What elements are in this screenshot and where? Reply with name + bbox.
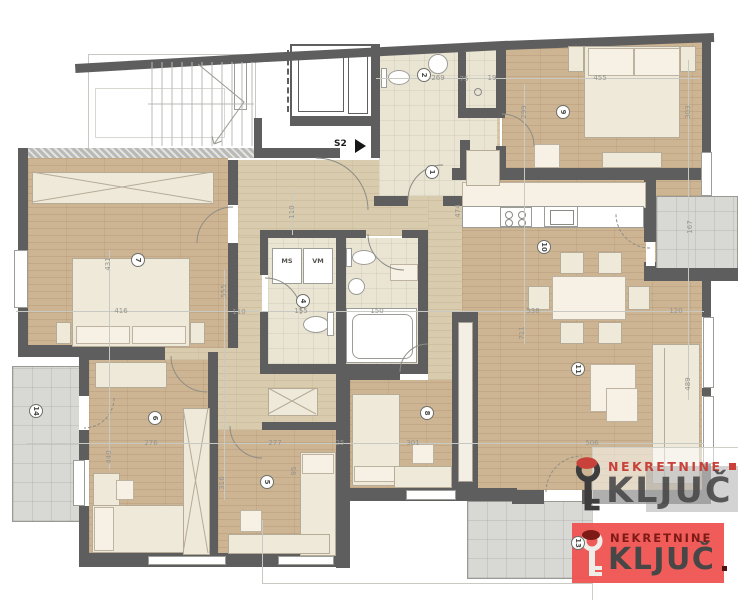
dim-label: 150: [370, 307, 383, 315]
stove: [500, 207, 532, 227]
dim-label: 316: [218, 476, 226, 489]
dim-label: 711: [518, 326, 526, 339]
wall-room6-left-b: [79, 430, 89, 460]
wardrobe-room7: [32, 172, 214, 204]
door-gap-terrace14: [79, 396, 89, 430]
dim-label: 167: [686, 220, 694, 233]
chair: [116, 480, 134, 500]
chair: [240, 510, 262, 532]
wall-room5-top: [262, 422, 336, 430]
sink-bath12: [348, 278, 365, 295]
dim-label: 95: [290, 467, 298, 476]
dryer-label: MS: [281, 257, 292, 283]
kitchen-sink: [544, 206, 578, 227]
bathtub: [346, 308, 417, 363]
washer-label: VM: [312, 257, 324, 283]
burner: [505, 211, 513, 219]
wall-bathC-right: [418, 230, 428, 372]
watermark-red-square: [729, 463, 736, 470]
dim-label: 416: [114, 307, 127, 315]
chair: [598, 252, 622, 274]
wall-bath-mid: [336, 230, 346, 372]
outline-line: [262, 520, 263, 584]
window-bottom-1: [148, 556, 226, 565]
toilet-bath12: [352, 250, 376, 265]
cabinet-room6: [95, 362, 167, 388]
wall-entry: [262, 148, 340, 158]
room-number-1: 1: [425, 165, 439, 179]
dryer-box: MS: [272, 248, 302, 284]
room-number-10: 10: [537, 240, 551, 254]
chair: [560, 252, 584, 274]
room-number-4: 4: [296, 294, 310, 308]
shelf-bath12: [390, 264, 418, 281]
dim-label: 474: [454, 204, 462, 217]
dim-label: 555: [220, 284, 228, 297]
desk-room5: [228, 534, 330, 554]
room-number-7: 7: [131, 253, 145, 267]
wall-room58-divider: [336, 378, 350, 568]
pillow: [302, 454, 334, 474]
wall-balcony-bottom: [644, 268, 738, 281]
pillow: [588, 48, 634, 76]
burner: [505, 219, 513, 227]
entrance-arrow-icon: [355, 139, 366, 153]
wall-bath2-bottom: [374, 196, 408, 206]
wall-room9-left-a: [496, 44, 506, 114]
chair: [628, 286, 650, 310]
dim-label: 155: [294, 307, 307, 315]
outline-line: [262, 583, 592, 584]
room-number-8: 8: [420, 406, 434, 420]
dim-label: 75: [460, 75, 469, 83]
wall-bathB-left-b: [260, 312, 268, 372]
dim-label: 110: [288, 205, 296, 218]
coffee-table-small: [606, 388, 638, 422]
toilet-tank-bath12: [346, 248, 352, 267]
wall-living-bottom-a: [512, 490, 544, 504]
room-number-6: 6: [148, 411, 162, 425]
wardrobe-room6: [183, 408, 210, 555]
room-number-13: 13: [571, 536, 585, 550]
chair: [412, 444, 434, 464]
window-room7: [14, 250, 28, 308]
pillow: [76, 326, 130, 344]
dresser-room9: [602, 152, 662, 168]
stair-landing-door: [234, 62, 247, 110]
dining-table: [552, 276, 626, 320]
wall-entry-left: [254, 118, 262, 158]
chair: [598, 322, 622, 344]
washer-box: VM: [303, 248, 333, 284]
room-number-14: 14: [29, 404, 43, 418]
hall-shelf: [534, 144, 560, 168]
wall-room7-right-a: [228, 160, 238, 205]
dim-label: 301: [406, 439, 419, 447]
sink-basin: [550, 210, 574, 225]
dim-label: 489: [684, 377, 692, 390]
key-icon: [570, 455, 606, 515]
wall-room6-left-c: [79, 506, 89, 556]
dim-label: 299: [520, 105, 528, 118]
entrance-label: S2: [334, 139, 347, 149]
dim-label: 110: [232, 308, 245, 316]
door-gap-balcony: [646, 242, 655, 266]
wall-right-top: [702, 38, 711, 152]
dim-label: 19: [488, 74, 497, 82]
window-room9: [701, 152, 712, 196]
dim-label: 276: [144, 439, 157, 447]
sink-bath2: [428, 54, 448, 74]
toilet-tank-bath4: [327, 312, 334, 336]
stair-void-outline: [95, 88, 225, 138]
dim-label: 277: [268, 439, 281, 447]
window-room6: [73, 460, 85, 506]
badge-dark-square: [722, 566, 727, 571]
dim-label: 455: [593, 74, 606, 82]
dim-label: 506: [585, 439, 598, 447]
elevator-counterweight: [348, 52, 368, 114]
dim-label: 25: [336, 439, 345, 447]
wall-bath2-left: [371, 44, 380, 158]
wall-room6-left-a: [79, 352, 89, 396]
nightstand: [568, 46, 584, 72]
chair: [560, 322, 584, 344]
room-number-2: 2: [417, 68, 431, 82]
drain-annex: [474, 88, 482, 96]
wall-room7-right-b: [228, 243, 238, 348]
elevator-car: [298, 54, 344, 112]
terrace-14-floor: [12, 366, 81, 522]
wall-elevator-bottom: [290, 117, 378, 126]
dim-label: 120: [669, 307, 682, 315]
badge-brand-line2: KLJUČ: [608, 545, 715, 575]
nightstand: [56, 322, 71, 344]
dim-line: [524, 84, 525, 344]
pillow: [634, 48, 680, 76]
wall-room6-top: [79, 352, 165, 360]
dim-label: 269: [431, 74, 444, 82]
watermark-brand-line2: KLJUČ: [606, 474, 733, 509]
dim-line: [224, 270, 225, 500]
dim-label: 440: [105, 450, 113, 463]
balcony-floor: [656, 196, 738, 270]
dim-line: [26, 443, 704, 444]
room-number-5: 5: [260, 475, 274, 489]
window-bottom-2: [278, 556, 334, 565]
wall-left-room7-a: [18, 148, 28, 250]
desk-room8: [394, 466, 452, 488]
window-room8: [406, 490, 456, 500]
pillow: [354, 466, 398, 482]
dim-label: 303: [684, 105, 692, 118]
hall-cabinet: [466, 150, 500, 186]
toilet-bath4: [303, 316, 329, 333]
sliding-door-panel: [458, 322, 473, 482]
pillow: [94, 507, 114, 551]
room-number-11: 11: [571, 362, 585, 376]
bathtub-inner: [352, 314, 413, 359]
nightstand: [190, 322, 205, 344]
wall-right-mullion: [702, 388, 711, 396]
dim-line: [109, 250, 110, 470]
dim-label: 538: [526, 307, 539, 315]
room-number-9: 9: [556, 105, 570, 119]
pillow: [132, 326, 186, 344]
dim-label: 431: [104, 257, 112, 270]
window-living-1: [703, 317, 714, 388]
closet-corridor: [268, 388, 318, 416]
wall-hatched-under-stairs: [28, 148, 262, 158]
wall-bath-top-a: [260, 230, 366, 238]
floor-plan: MS VM 455 26: [0, 0, 738, 600]
